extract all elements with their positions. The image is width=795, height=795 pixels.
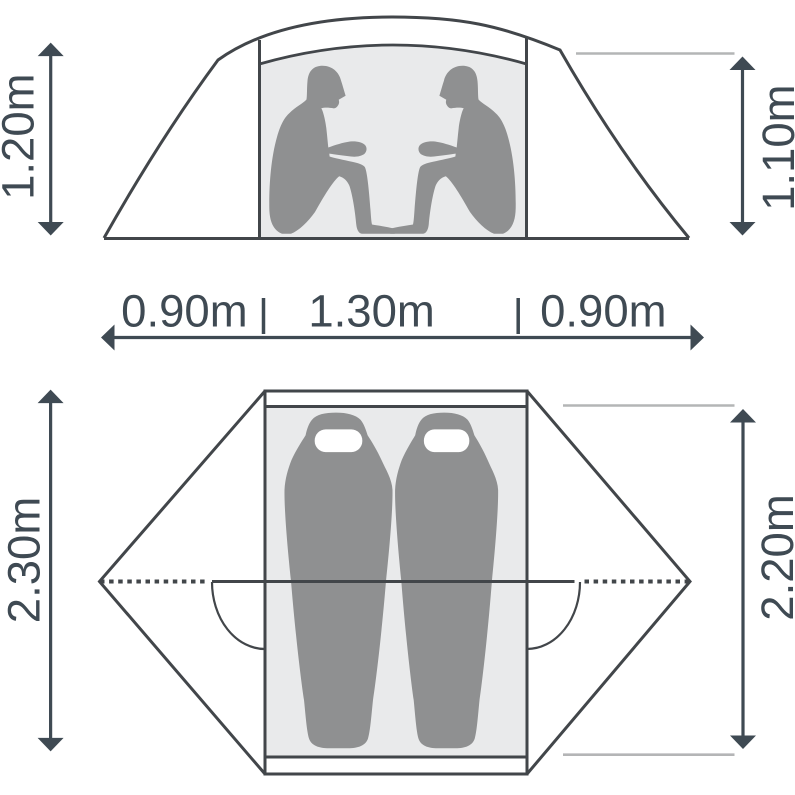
svg-text:1.30m: 1.30m	[308, 286, 434, 337]
svg-text:1.20m: 1.20m	[0, 73, 44, 199]
svg-text:0.90m: 0.90m	[121, 286, 247, 337]
svg-text:0.90m: 0.90m	[540, 286, 666, 337]
svg-text:2.20m: 2.20m	[752, 494, 795, 620]
svg-text:2.30m: 2.30m	[0, 497, 50, 623]
svg-text:1.10m: 1.10m	[753, 84, 795, 210]
